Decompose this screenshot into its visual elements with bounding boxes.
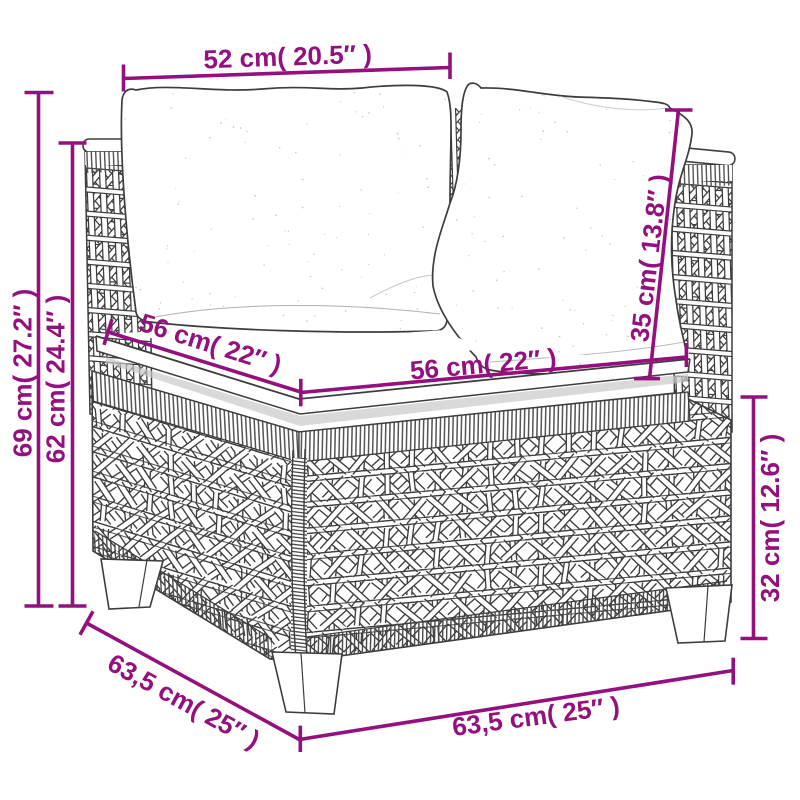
svg-text:69 cm( 27.2″ ): 69 cm( 27.2″ ) (8, 289, 38, 458)
svg-text:52 cm( 20.5″ ): 52 cm( 20.5″ ) (203, 39, 372, 75)
svg-text:62 cm( 24.4″ ): 62 cm( 24.4″ ) (41, 295, 71, 464)
svg-text:32 cm( 12.6″ ): 32 cm( 12.6″ ) (755, 434, 785, 603)
